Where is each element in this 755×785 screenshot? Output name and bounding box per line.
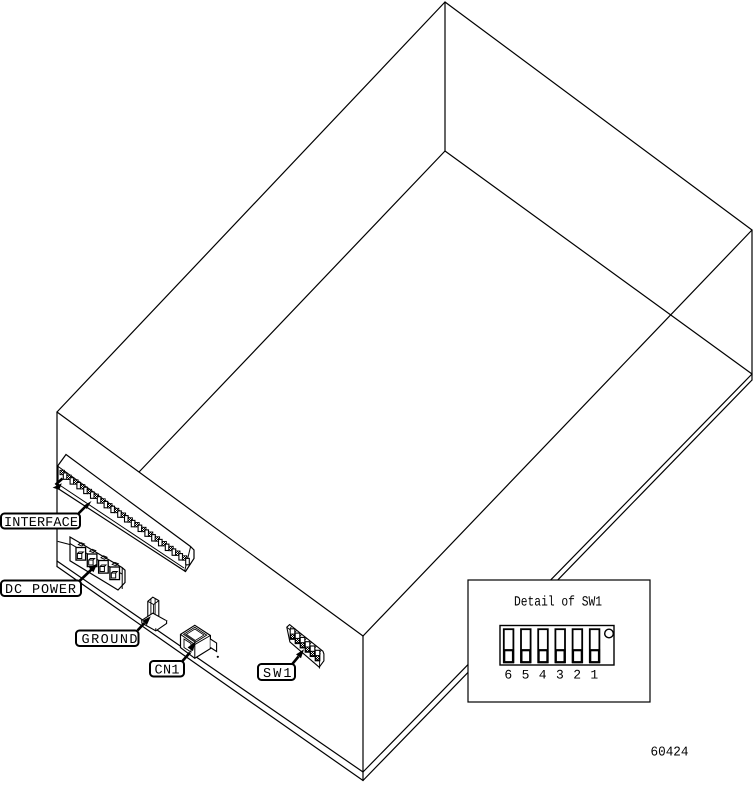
- svg-text:1: 1: [590, 668, 598, 683]
- svg-text:6: 6: [504, 668, 512, 683]
- svg-text:CN1: CN1: [155, 664, 180, 679]
- svg-text:4: 4: [539, 668, 547, 683]
- svg-text:DC POWER: DC POWER: [5, 583, 76, 598]
- svg-text:60424: 60424: [651, 746, 689, 761]
- svg-text:2: 2: [573, 668, 581, 683]
- svg-text:5: 5: [522, 668, 530, 683]
- svg-text:Detail of SW1: Detail of SW1: [514, 595, 602, 611]
- svg-text:SW1: SW1: [263, 667, 292, 682]
- svg-text:INTERFACE: INTERFACE: [4, 516, 78, 531]
- svg-text:3: 3: [556, 668, 564, 683]
